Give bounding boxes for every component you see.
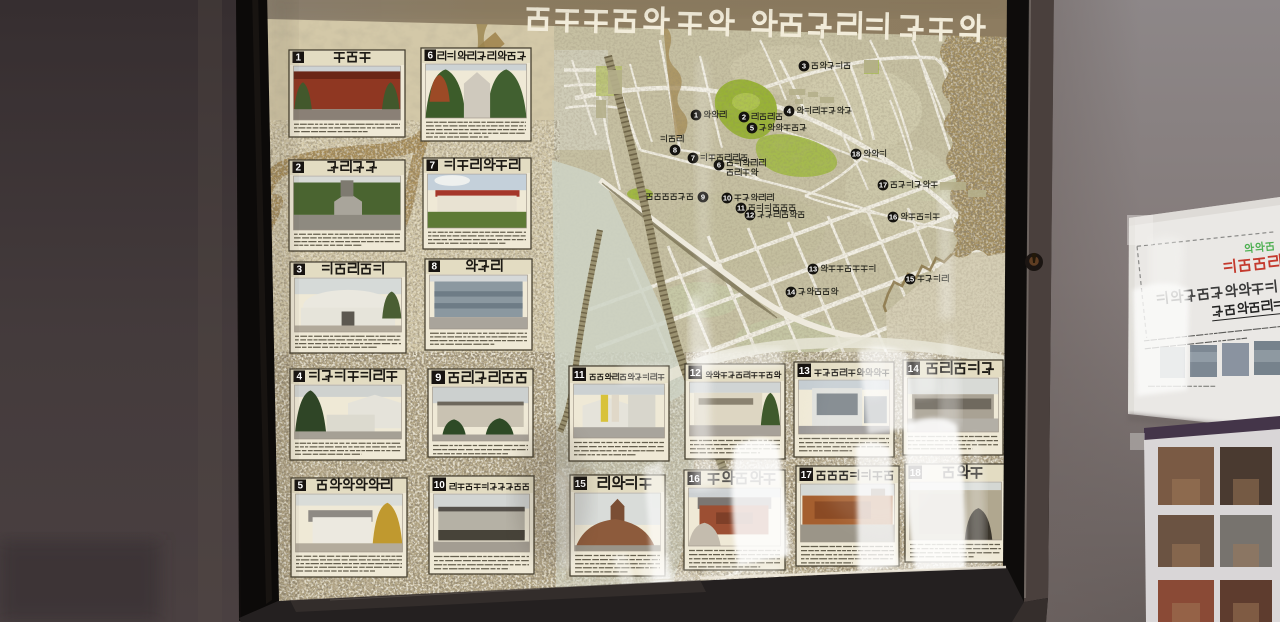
svg-text:4: 4 bbox=[296, 371, 302, 382]
svg-text:14: 14 bbox=[787, 288, 796, 297]
svg-text:12: 12 bbox=[746, 211, 754, 220]
svg-text:10: 10 bbox=[434, 480, 446, 491]
svg-text:13: 13 bbox=[809, 265, 817, 274]
svg-text:2: 2 bbox=[742, 113, 746, 122]
svg-text:2: 2 bbox=[295, 162, 301, 173]
svg-text:11: 11 bbox=[574, 370, 585, 381]
svg-text:1: 1 bbox=[295, 52, 301, 63]
svg-text:8: 8 bbox=[431, 261, 437, 272]
svg-text:7: 7 bbox=[429, 160, 435, 171]
svg-text:3: 3 bbox=[296, 264, 302, 275]
svg-text:6: 6 bbox=[427, 50, 433, 61]
svg-text:16: 16 bbox=[889, 213, 897, 222]
svg-text:5: 5 bbox=[750, 124, 754, 133]
svg-text:13: 13 bbox=[799, 366, 811, 377]
svg-text:6: 6 bbox=[717, 161, 721, 170]
svg-text:9: 9 bbox=[435, 372, 441, 384]
svg-text:17: 17 bbox=[801, 470, 813, 481]
svg-text:3: 3 bbox=[802, 62, 806, 71]
svg-text:10: 10 bbox=[723, 194, 731, 203]
svg-text:8: 8 bbox=[673, 146, 677, 155]
svg-text:18: 18 bbox=[852, 150, 860, 159]
svg-text:17: 17 bbox=[879, 181, 887, 190]
svg-text:15: 15 bbox=[906, 275, 914, 284]
svg-text:7: 7 bbox=[691, 154, 695, 163]
svg-text:11: 11 bbox=[737, 204, 745, 213]
svg-text:5: 5 bbox=[297, 480, 303, 491]
